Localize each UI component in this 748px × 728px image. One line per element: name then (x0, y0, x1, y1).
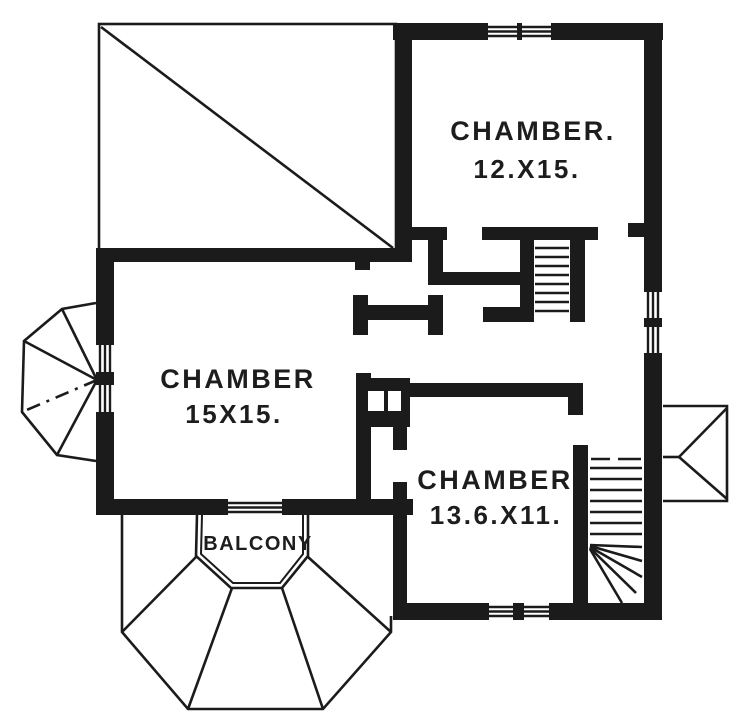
oriel-roof-right (663, 406, 727, 501)
stair-winder (590, 545, 642, 547)
roof-plan-top-left (99, 24, 396, 251)
back-staircase (590, 459, 642, 603)
wall-top-chamber-left (395, 23, 412, 262)
wall-stub (628, 223, 644, 237)
wall-stair-foot (483, 307, 534, 322)
floor-plan-drawing: CHAMBER. 12.X15. CHAMBER 15X15. CHAMBER … (0, 0, 748, 728)
label-chamber-left: CHAMBER (160, 364, 316, 394)
label-chamber-bottom: CHAMBER (417, 465, 573, 495)
roof-diagonal-line (101, 27, 393, 248)
label-chamber-top-right: CHAMBER. (450, 116, 616, 146)
label-chamber-bottom-dims: 13.6.X11. (430, 500, 562, 530)
wall-left (96, 249, 114, 515)
wall-bottom-chamber-left (393, 482, 407, 618)
label-balcony: BALCONY (203, 533, 312, 555)
porch-hip (282, 588, 323, 709)
wall-closet-horizontal (428, 272, 523, 285)
wall-back-stair-left (573, 445, 588, 618)
stair-winder (590, 546, 642, 561)
wall-stub (355, 250, 370, 270)
wall-cap (568, 383, 583, 415)
porch-hip (188, 588, 232, 709)
bay-roof-outline (22, 303, 96, 461)
flue-cell (388, 391, 401, 411)
label-chamber-top-right-dims: 12.X15. (473, 154, 580, 184)
walls (96, 23, 663, 620)
room-labels: CHAMBER. 12.X15. CHAMBER 15X15. CHAMBER … (160, 116, 616, 555)
bay-window-roof-left (22, 303, 97, 461)
wall-stair-right (570, 227, 585, 322)
bay-roof-hip (57, 380, 97, 455)
porch-hip (122, 557, 196, 632)
label-chamber-left-dims: 15X15. (185, 399, 282, 429)
bay-roof-hip-dashed (22, 380, 97, 412)
wall-right (644, 23, 662, 620)
oriel-hip (679, 457, 727, 499)
floor-plan-canvas: CHAMBER. 12.X15. CHAMBER 15X15. CHAMBER … (0, 0, 748, 728)
main-staircase (535, 248, 569, 311)
flue-cell (368, 391, 384, 411)
wall-stub (393, 427, 407, 450)
oriel-hip (679, 408, 727, 457)
porch-hip (308, 557, 391, 632)
wall-cap (428, 295, 443, 335)
oriel-outline (663, 406, 727, 501)
